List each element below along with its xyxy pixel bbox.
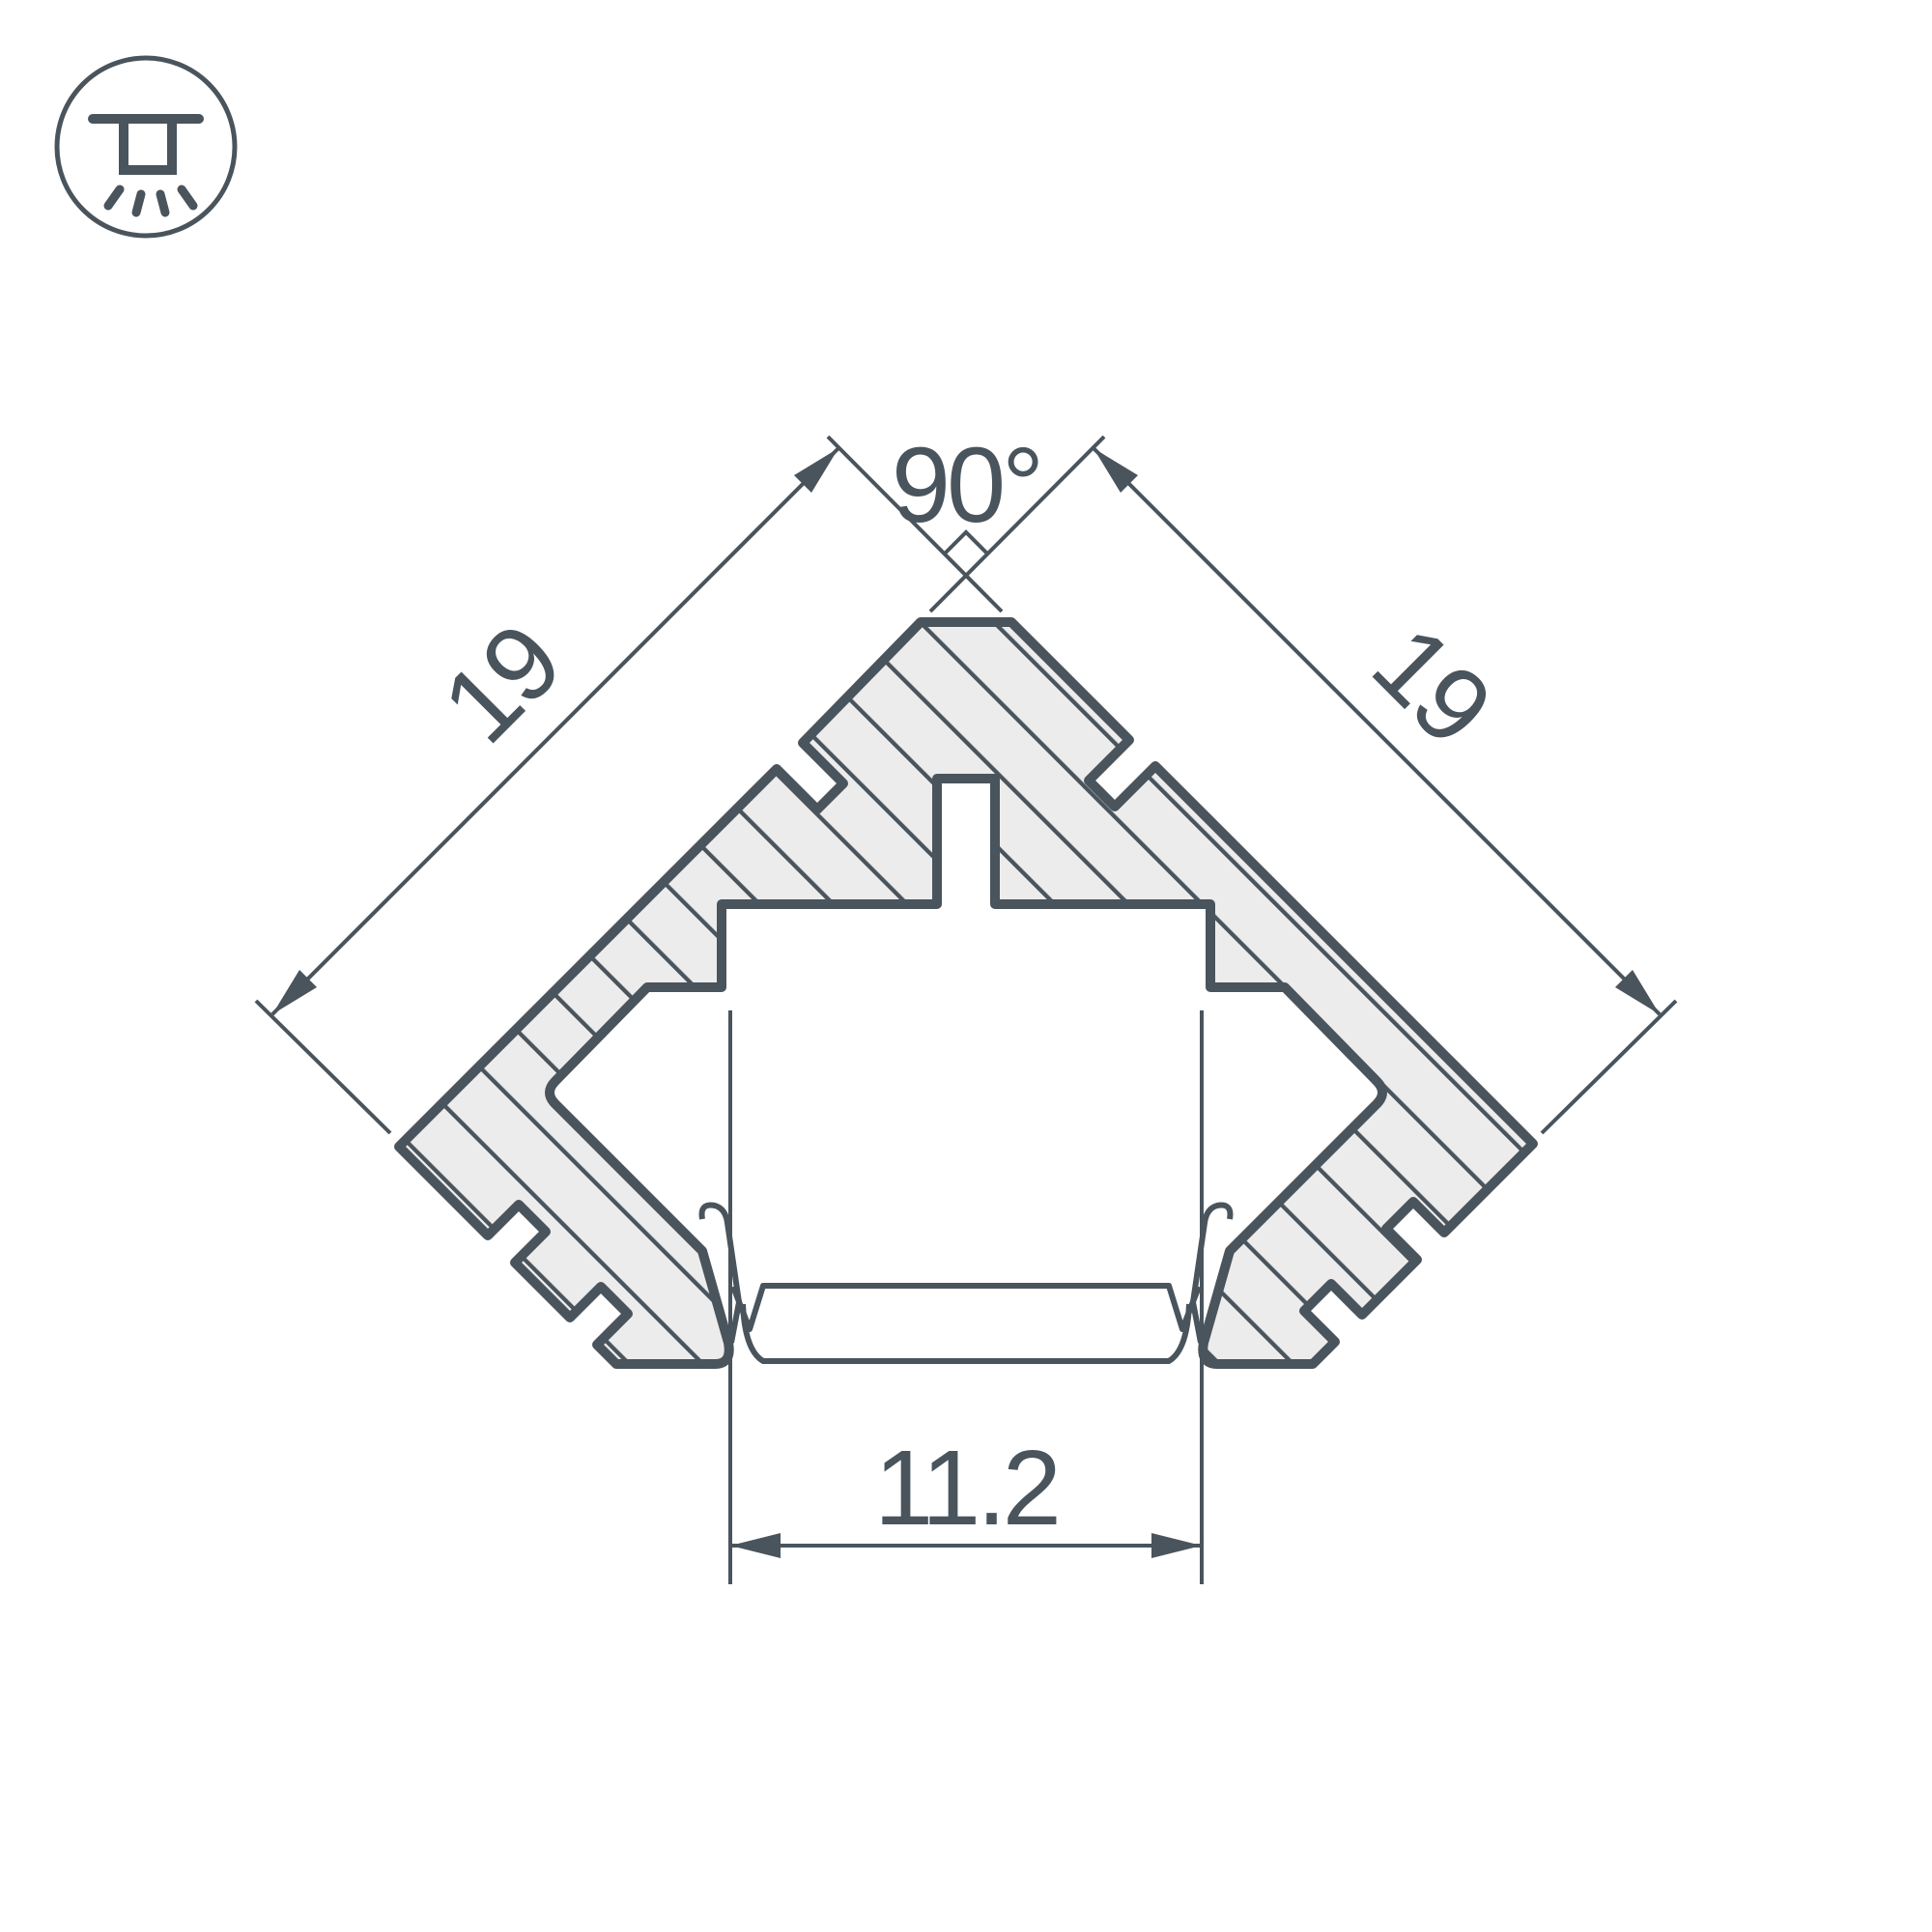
icon-fixture-box — [124, 119, 172, 170]
icon-circle — [57, 58, 235, 236]
dimension-line-left — [272, 448, 838, 1014]
extension-tick-left-bottom — [256, 1001, 390, 1133]
technical-drawing: 19 19 90° 11.2 — [0, 0, 1932, 1932]
arrowhead-opening-left — [730, 1533, 781, 1558]
clip-flanges — [702, 1206, 1231, 1343]
icon-light-rays — [108, 189, 193, 213]
dimension-label-angle: 90° — [892, 426, 1040, 545]
diffuser-cover — [733, 1286, 1199, 1361]
dimension-label-opening: 11.2 — [874, 1429, 1058, 1548]
diffuser-tray — [743, 1304, 1189, 1361]
dimension-line-right — [1094, 448, 1660, 1014]
dimension-opening-width: 11.2 — [730, 1010, 1202, 1584]
dimension-label-right-19: 19 — [1350, 604, 1513, 766]
profile-body-hatch — [399, 622, 1533, 1364]
profile-cross-section — [399, 622, 1533, 1364]
drawing-page: 19 19 90° 11.2 — [0, 0, 1932, 1932]
recessed-ceiling-light-icon — [57, 58, 235, 236]
dimension-apex-angle: 90° — [828, 426, 1104, 611]
extension-tick-right-bottom — [1542, 1001, 1676, 1133]
dimension-label-left-19: 19 — [420, 604, 582, 766]
arrowhead-opening-right — [1151, 1533, 1202, 1558]
diffuser-top-edge — [733, 1286, 1199, 1329]
